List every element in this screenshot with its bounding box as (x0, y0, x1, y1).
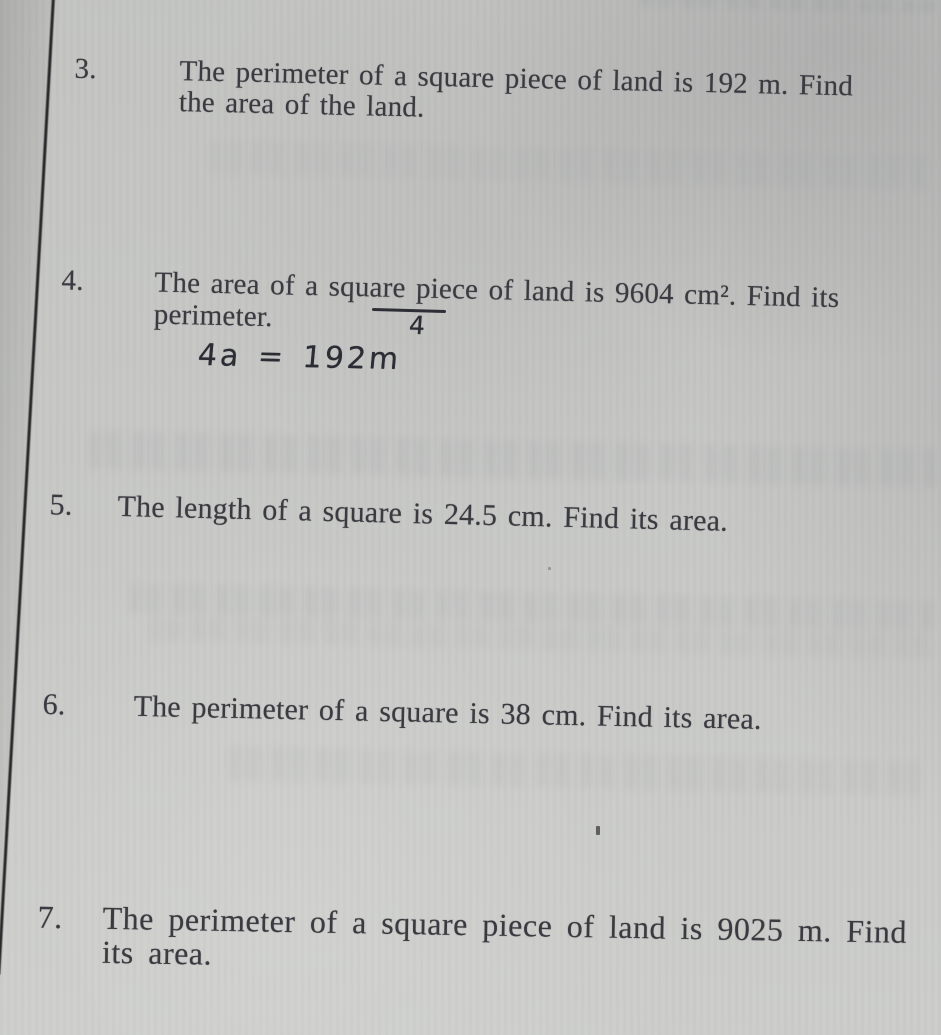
ghost-text-smudge (210, 140, 931, 190)
ghost-text-smudge (90, 430, 936, 487)
problem-7: 7. The perimeter of a square piece of la… (0, 899, 941, 983)
ghost-text-smudge (640, 0, 940, 13)
problem-7-text: The perimeter of a square piece of land … (102, 901, 941, 984)
problem-5-text: The length of a square is 24.5 cm. Find … (117, 491, 941, 543)
problem-6-text: The perimeter of a square is 38 cm. Find… (133, 691, 940, 740)
problem-5-line-1: The length of a square is 24.5 cm. Find … (117, 491, 941, 543)
problem-6-line-1: The perimeter of a square is 38 cm. Find… (133, 691, 940, 740)
problem-3: 3. The perimeter of a square piece of la… (0, 52, 941, 135)
problem-3-text: The perimeter of a square piece of land … (179, 56, 941, 135)
problem-4-text: The area of a square piece of land is 96… (154, 267, 941, 349)
problem-5: 5. The length of a square is 24.5 cm. Fi… (0, 488, 941, 543)
ink-speck (548, 567, 551, 570)
ink-speck (596, 826, 600, 835)
problem-3-number: 3. (74, 54, 97, 85)
problem-4-number: 4. (61, 264, 84, 296)
ghost-text-smudge (230, 746, 921, 796)
handwritten-denominator: 4 (408, 311, 426, 340)
problem-6-number: 6. (42, 689, 66, 721)
problem-4: 4. The area of a square piece of land is… (0, 263, 941, 348)
handwritten-equation: 4a = 192m (196, 338, 402, 377)
page-paper: 3. The perimeter of a square piece of la… (0, 0, 941, 1035)
problem-6: 6. The perimeter of a square is 38 cm. F… (0, 688, 941, 740)
problem-5-number: 5. (49, 489, 73, 522)
problem-7-number: 7. (37, 900, 63, 934)
